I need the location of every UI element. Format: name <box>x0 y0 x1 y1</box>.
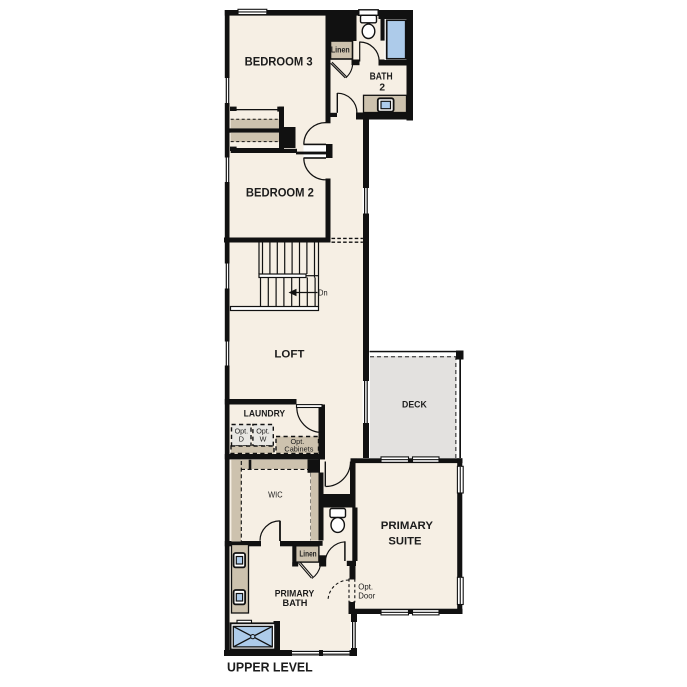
svg-text:W: W <box>260 434 267 443</box>
svg-text:Opt.: Opt. <box>358 583 373 592</box>
svg-text:SUITE: SUITE <box>388 535 421 547</box>
svg-text:LAUNDRY: LAUNDRY <box>244 408 286 418</box>
svg-text:WIC: WIC <box>268 491 283 500</box>
svg-text:Linen: Linen <box>299 549 316 558</box>
svg-text:Linen: Linen <box>331 46 350 55</box>
svg-text:BEDROOM 2: BEDROOM 2 <box>246 186 314 199</box>
svg-text:BATH: BATH <box>283 598 308 608</box>
svg-text:UPPER LEVEL: UPPER LEVEL <box>227 660 313 675</box>
svg-text:Dn: Dn <box>318 287 328 297</box>
svg-text:PRIMARY: PRIMARY <box>381 520 434 532</box>
svg-text:D: D <box>239 434 244 443</box>
svg-text:Cabinets: Cabinets <box>284 445 313 454</box>
svg-text:BEDROOM 3: BEDROOM 3 <box>245 56 314 69</box>
svg-text:DECK: DECK <box>402 399 427 409</box>
svg-text:Door: Door <box>358 591 375 600</box>
svg-text:LOFT: LOFT <box>274 349 304 361</box>
svg-text:BATH: BATH <box>370 72 393 83</box>
svg-text:2: 2 <box>379 82 385 93</box>
svg-text:PRIMARY: PRIMARY <box>275 588 315 598</box>
